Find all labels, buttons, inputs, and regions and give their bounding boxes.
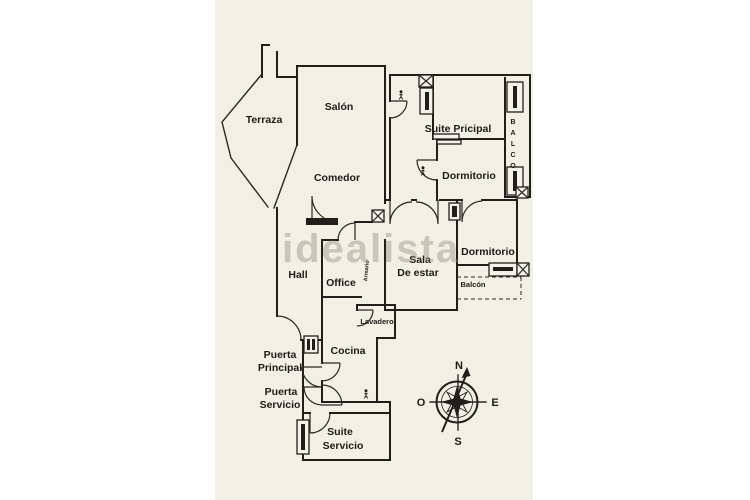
window-icon	[507, 82, 523, 112]
label-puerta-servicio-1: Puerta	[265, 386, 298, 398]
label-suite-servicio-2: Servicio	[323, 440, 364, 452]
floorplan-image: Terraza Salón Comedor Hall Office Suite …	[0, 0, 750, 500]
svg-text:C: C	[510, 152, 515, 159]
label-cocina: Cocina	[330, 345, 365, 357]
shaft-x-icon	[419, 75, 433, 87]
sliding-door-icon	[433, 134, 461, 144]
label-suite-servicio-1: Suite	[327, 426, 353, 438]
label-puerta-servicio-2: Servicio	[260, 399, 301, 411]
window-icon	[297, 420, 309, 454]
compass-label-s: S	[454, 436, 461, 448]
label-suite-principal: Suite Pricipal	[425, 123, 492, 135]
window-icon	[489, 263, 517, 276]
shaft-x-icon	[516, 187, 528, 198]
floor-plan-svg: Terraza Salón Comedor Hall Office Suite …	[0, 0, 750, 500]
compass-label-n: N	[455, 360, 463, 372]
svg-text:A: A	[510, 130, 515, 137]
svg-text:L: L	[511, 141, 516, 148]
entry-door-icon	[304, 336, 318, 353]
shaft-x-icon	[372, 210, 384, 222]
label-puerta-principal-1: Puerta	[264, 349, 297, 361]
label-comedor: Comedor	[314, 172, 360, 184]
label-balcon: Balcón	[460, 280, 485, 289]
label-terraza: Terraza	[246, 114, 283, 126]
label-puerta-principal-2: Principal	[258, 362, 302, 374]
label-lavadero: Lavadero	[360, 317, 394, 326]
label-dormitorio-1: Dormitorio	[442, 170, 496, 182]
compass-label-o: O	[417, 397, 426, 409]
idealista-watermark: idealista	[282, 227, 460, 271]
label-office: Office	[326, 277, 356, 289]
svg-text:O: O	[510, 163, 516, 170]
window-icon	[449, 203, 460, 220]
window-icon	[420, 88, 433, 114]
label-dormitorio-2: Dormitorio	[461, 246, 515, 258]
shaft-x-icon	[517, 263, 529, 276]
label-salon: Salón	[325, 101, 354, 113]
compass-label-e: E	[491, 397, 498, 409]
svg-text:B: B	[510, 119, 515, 126]
